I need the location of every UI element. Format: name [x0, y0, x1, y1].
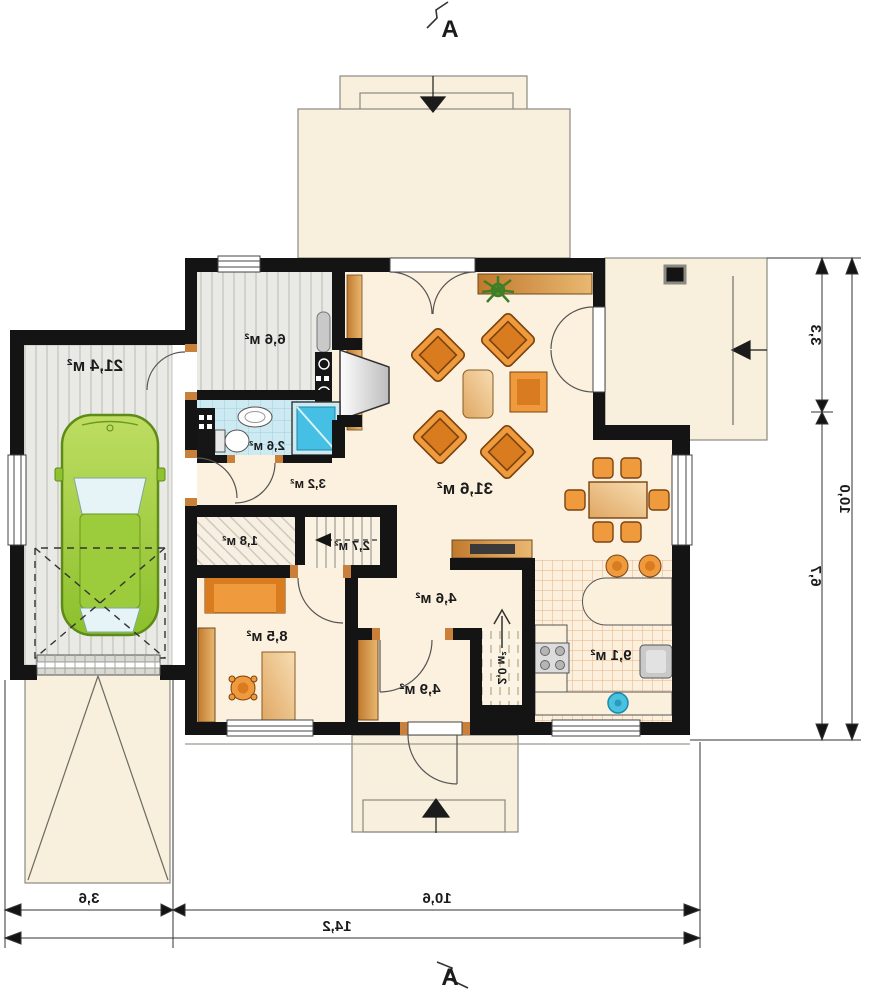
top-terrace-main	[298, 109, 570, 258]
dining-table	[589, 482, 647, 518]
kitchen-peninsula	[583, 578, 673, 625]
chimney	[665, 266, 685, 283]
tv	[470, 544, 515, 554]
french-door-opening	[390, 258, 475, 272]
section-marker-bottom: A	[441, 964, 458, 991]
stove	[535, 643, 569, 673]
floor-plan-drawing: 21,4 м² 6,6 м² 2,6 м² 3,2 м² 1,8 м² 2,7 …	[0, 0, 873, 1000]
room-label-garage: 21,4 м²	[67, 356, 123, 375]
room-label-storage: 1,8 м²	[222, 533, 258, 548]
room-label-kitchen: 9,1 м²	[590, 647, 631, 664]
vestibule-wardrobe	[358, 632, 378, 720]
coffee-table	[463, 370, 493, 418]
section-marker-top: A	[441, 16, 458, 43]
window-boiler	[218, 256, 260, 272]
room-label-living: 31,6 м²	[437, 479, 493, 498]
room-label-office: 8,5 м²	[246, 628, 287, 645]
floor-plan-page: 21,4 м² 6,6 м² 2,6 м² 3,2 м² 1,8 м² 2,7 …	[0, 0, 873, 1000]
office-wardrobe	[198, 628, 215, 722]
car-mirror	[157, 468, 165, 481]
pouf-inner	[517, 379, 540, 405]
room-label-boiler: 6,6 м²	[244, 331, 285, 348]
window-dining	[672, 455, 692, 545]
dim-label-bottom-house: 10,6	[422, 890, 451, 907]
bath-sink	[238, 407, 272, 427]
car	[55, 415, 165, 635]
window-kitchen	[552, 720, 640, 736]
terrace-door-opening	[593, 307, 605, 392]
dim-label-side-total: 10,0	[836, 484, 853, 513]
office-desk	[262, 652, 295, 722]
mirrored-plan-canvas: 21,4 м² 6,6 м² 2,6 м² 3,2 м² 1,8 м² 2,7 …	[0, 0, 873, 1000]
boiler	[317, 312, 330, 352]
office-chair	[229, 676, 257, 700]
toilet	[225, 430, 249, 452]
dim-label-side-lower: 6,7	[807, 566, 824, 587]
window-office	[227, 720, 313, 736]
room-label-hall: 4,6 м²	[415, 590, 456, 607]
room-label-stairs: 2,7 м²	[334, 538, 370, 553]
room-label-vestibule: 4,9 м²	[399, 681, 440, 698]
room-label-pantry: 2,0 м²	[495, 652, 509, 685]
car-mirror	[55, 468, 63, 481]
front-door-opening	[408, 722, 462, 735]
driveway	[25, 673, 170, 883]
dim-label-bottom-total: 14,2	[322, 918, 351, 935]
car-rear-window	[80, 608, 140, 632]
car-windshield	[74, 478, 146, 514]
garage-door	[37, 655, 160, 675]
room-label-bathroom: 2,6 м²	[249, 438, 285, 453]
room-label-hallway: 3,2 м²	[290, 476, 326, 491]
dim-label-side-upper: 3,3	[807, 325, 824, 346]
toilet-tank	[215, 430, 225, 452]
kitchen-counter-bottom	[535, 692, 672, 715]
window-garage	[8, 455, 26, 545]
dim-label-bottom-garage: 3,6	[79, 890, 100, 907]
